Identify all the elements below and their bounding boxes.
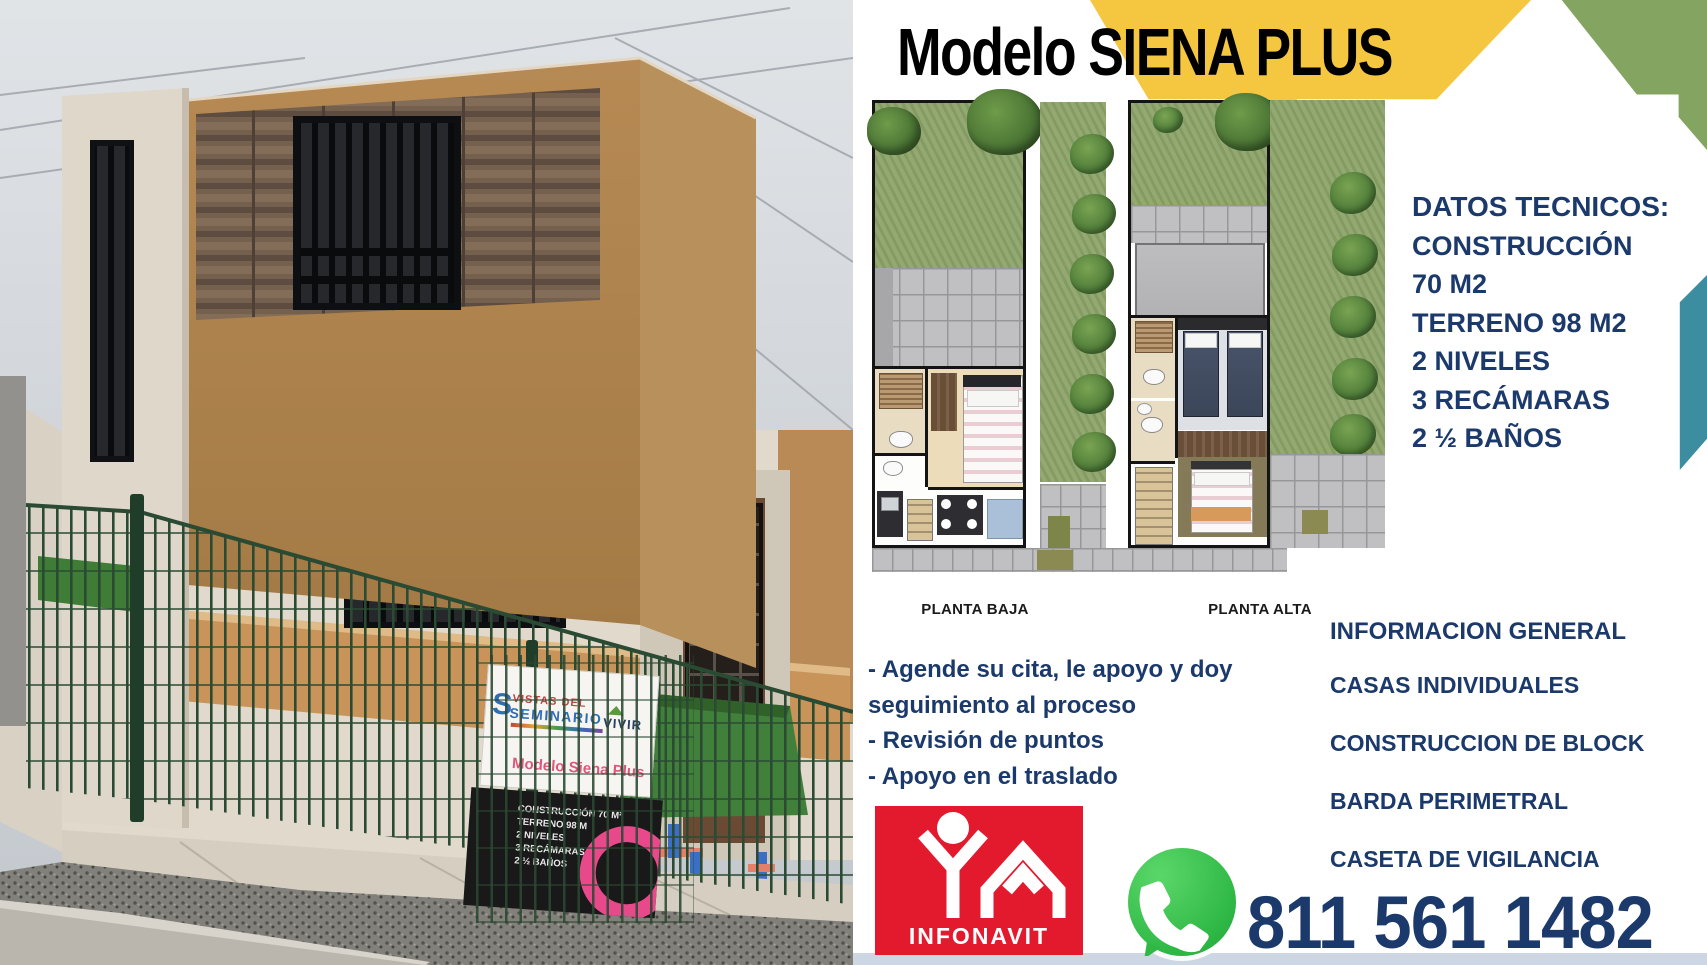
- floor-plan-planta-baja: [872, 92, 1032, 548]
- datos-line: TERRENO 98 M2: [1412, 304, 1669, 343]
- stairs: [907, 499, 933, 541]
- datos-heading: DATOS TECNICOS:: [1412, 188, 1669, 227]
- infonavit-label: INFONAVIT: [875, 923, 1083, 950]
- wardrobe: [1178, 431, 1267, 457]
- teal-edge: [1675, 275, 1707, 470]
- bush: [1072, 432, 1116, 472]
- info-item: BARDA PERIMETRAL: [1330, 788, 1644, 815]
- infonavit-pictogram: [875, 806, 1083, 918]
- tree: [967, 89, 1043, 155]
- datos-line: 3 RECÁMARAS: [1412, 381, 1669, 420]
- infonavit-logo: INFONAVIT: [875, 806, 1083, 955]
- bush: [1072, 314, 1116, 354]
- flyer-title: Modelo SIENA PLUS: [897, 14, 1392, 91]
- info-heading: INFORMACION GENERAL: [1330, 618, 1644, 646]
- bush: [1070, 134, 1114, 174]
- garage-roof: [1135, 243, 1265, 319]
- green-corner: [1540, 0, 1707, 150]
- concrete-post: [0, 376, 26, 726]
- label-planta-baja: PLANTA BAJA: [895, 601, 1055, 618]
- info-item: CASAS INDIVIDUALES: [1330, 672, 1644, 699]
- informacion-general: INFORMACION GENERAL CASAS INDIVIDUALES C…: [1330, 618, 1644, 873]
- sofa: [987, 499, 1023, 539]
- datos-line: 2 ½ BAÑOS: [1412, 419, 1669, 458]
- datos-line: CONSTRUCCIÓN: [1412, 227, 1669, 266]
- service-item: - Revisión de puntos: [868, 723, 1320, 759]
- upper-window: [293, 116, 461, 310]
- bush: [1070, 254, 1114, 294]
- plan-driveway: [875, 268, 1023, 368]
- tree: [867, 107, 921, 155]
- label-planta-alta: PLANTA ALTA: [1180, 601, 1340, 618]
- plan-grass: [1270, 100, 1385, 454]
- datos-tecnicos: DATOS TECNICOS: CONSTRUCCIÓN 70 M2 TERRE…: [1412, 188, 1669, 458]
- pillar-window: [90, 140, 134, 462]
- services-list: - Agende su cita, le apoyo y doy seguimi…: [868, 652, 1320, 794]
- service-item: - Agende su cita, le apoyo y doy seguimi…: [868, 652, 1320, 723]
- floor-plan-planta-alta: [1040, 92, 1385, 548]
- upper-floor-side: [640, 58, 756, 668]
- datos-line: 70 M2: [1412, 265, 1669, 304]
- service-item: - Apoyo en el traslado: [868, 759, 1320, 795]
- bush: [1072, 194, 1116, 234]
- plan-sidewalk: [872, 548, 1287, 572]
- phone-number: 811 561 1482: [1247, 880, 1653, 965]
- datos-line: 2 NIVELES: [1412, 342, 1669, 381]
- whatsapp-icon: [1128, 848, 1236, 956]
- bush: [1070, 374, 1114, 414]
- fence-over-sign: [476, 655, 694, 923]
- house-photo: [0, 0, 853, 965]
- fence-post: [130, 494, 144, 822]
- stairs: [1135, 467, 1173, 545]
- flyer: S VISTAS DEL SEMINARIO VIVIR Modelo Sien…: [0, 0, 1707, 965]
- info-item: CASETA DE VIGILANCIA: [1330, 846, 1644, 873]
- info-item: CONSTRUCCION DE BLOCK: [1330, 730, 1644, 757]
